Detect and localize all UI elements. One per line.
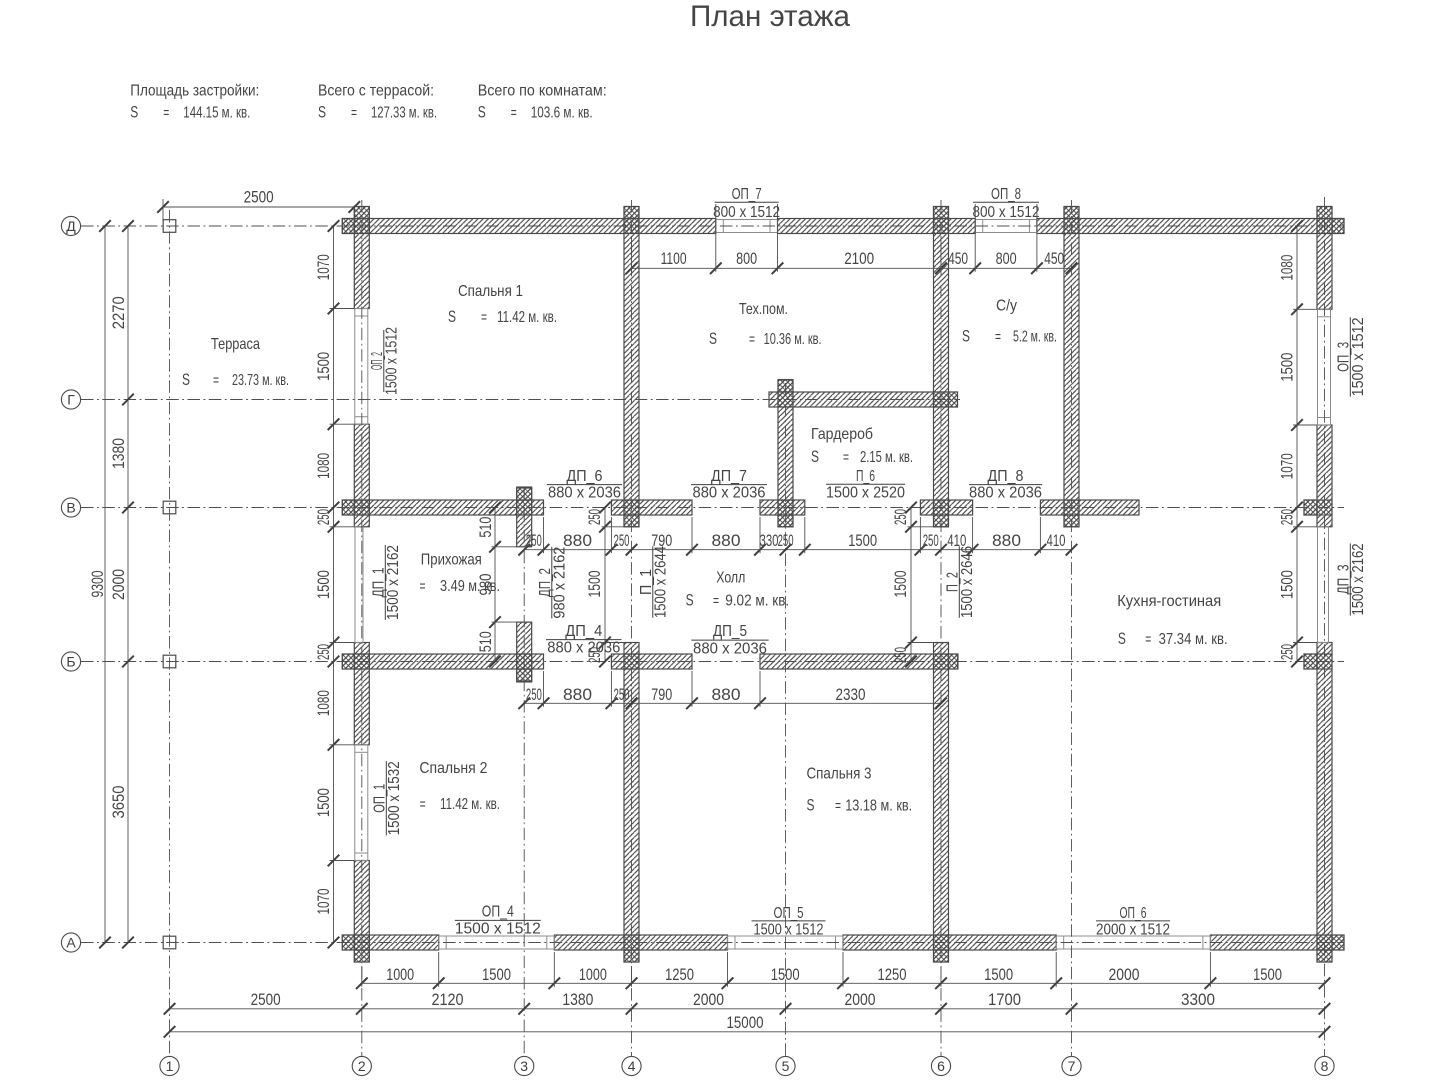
svg-text:510: 510 — [477, 631, 495, 652]
svg-text:S: S — [130, 103, 138, 122]
svg-text:5.2 м. кв.: 5.2 м. кв. — [1013, 329, 1057, 346]
svg-text:250: 250 — [315, 644, 333, 660]
svg-text:=: = — [420, 796, 426, 813]
svg-text:8: 8 — [1321, 1058, 1329, 1074]
svg-text:ОП_5: ОП_5 — [774, 905, 804, 922]
svg-text:250: 250 — [923, 532, 939, 550]
svg-text:2.15 м. кв.: 2.15 м. кв. — [860, 449, 913, 466]
svg-text:Гардероб: Гардероб — [811, 426, 873, 443]
svg-text:11.42 м. кв.: 11.42 м. кв. — [497, 309, 557, 326]
svg-text:330: 330 — [760, 532, 779, 550]
svg-text:1500: 1500 — [315, 788, 333, 817]
svg-text:880 x 2036: 880 x 2036 — [548, 485, 621, 502]
svg-text:=: = — [511, 105, 517, 122]
svg-text:510: 510 — [477, 517, 495, 538]
svg-text:ДП_7: ДП_7 — [711, 468, 747, 485]
svg-text:1080: 1080 — [1279, 255, 1297, 281]
svg-text:1500 х 1532: 1500 х 1532 — [386, 761, 403, 835]
svg-text:23.73 м. кв.: 23.73 м. кв. — [232, 372, 289, 389]
svg-text:S: S — [962, 327, 970, 346]
svg-text:250: 250 — [1279, 644, 1297, 660]
svg-text:S: S — [1118, 629, 1126, 648]
svg-text:144.15 м. кв.: 144.15 м. кв. — [183, 105, 250, 122]
svg-text:880: 880 — [563, 686, 592, 704]
svg-text:1500 x 1512: 1500 x 1512 — [384, 327, 401, 395]
svg-text:S: S — [807, 796, 815, 815]
svg-text:=: = — [213, 372, 219, 389]
svg-text:ДП_4: ДП_4 — [565, 623, 602, 640]
svg-text:=: = — [420, 578, 426, 595]
svg-text:1500 х 2162: 1500 х 2162 — [1350, 544, 1367, 616]
svg-text:=: = — [163, 105, 169, 122]
svg-text:1080: 1080 — [315, 690, 333, 716]
svg-text:1500: 1500 — [848, 532, 877, 550]
svg-text:250: 250 — [614, 532, 630, 550]
svg-text:1380: 1380 — [562, 991, 593, 1009]
svg-text:ОП_6: ОП_6 — [1120, 905, 1147, 922]
svg-text:1500 х 2644: 1500 х 2644 — [653, 546, 670, 618]
svg-text:250: 250 — [892, 647, 910, 663]
svg-text:3.49 м. кв.: 3.49 м. кв. — [440, 578, 500, 595]
svg-text:1500: 1500 — [1279, 570, 1297, 599]
svg-text:S: S — [709, 329, 717, 348]
svg-text:Холл: Холл — [716, 570, 745, 587]
svg-text:880 x 2036: 880 x 2036 — [693, 485, 766, 502]
svg-text:Спальня 1: Спальня 1 — [458, 283, 523, 300]
svg-text:250: 250 — [614, 686, 630, 704]
svg-text:250: 250 — [586, 509, 604, 525]
svg-text:S: S — [811, 447, 819, 466]
svg-text:2100: 2100 — [844, 250, 874, 268]
svg-text:250: 250 — [526, 532, 542, 550]
svg-text:2500: 2500 — [244, 189, 274, 207]
svg-text:С/у: С/у — [996, 298, 1017, 315]
svg-text:ДП_6: ДП_6 — [567, 468, 603, 485]
svg-text:В: В — [66, 499, 75, 515]
svg-text:15000: 15000 — [727, 1014, 764, 1032]
svg-text:450: 450 — [948, 250, 968, 268]
svg-text:Кухня-гостиная: Кухня-гостиная — [1117, 593, 1221, 610]
svg-text:1500: 1500 — [586, 571, 604, 598]
svg-text:=: = — [835, 798, 841, 815]
svg-text:1700: 1700 — [988, 991, 1021, 1009]
svg-text:План этажа: План этажа — [690, 0, 850, 33]
svg-text:А: А — [66, 934, 76, 950]
svg-text:1000: 1000 — [579, 966, 607, 984]
svg-text:250: 250 — [892, 509, 910, 525]
svg-text:2270: 2270 — [110, 296, 128, 329]
svg-text:2000 x 1512: 2000 x 1512 — [1096, 922, 1170, 939]
svg-text:1500: 1500 — [315, 570, 333, 599]
svg-text:37.34 м. кв.: 37.34 м. кв. — [1159, 631, 1228, 648]
svg-text:2500: 2500 — [251, 991, 281, 1009]
svg-text:2000: 2000 — [693, 991, 724, 1009]
svg-text:11.42 м. кв.: 11.42 м. кв. — [440, 796, 500, 813]
svg-text:1100: 1100 — [661, 250, 687, 268]
svg-text:S: S — [318, 103, 326, 122]
svg-text:Д: Д — [66, 218, 76, 234]
svg-text:250: 250 — [315, 509, 333, 525]
svg-text:5: 5 — [782, 1058, 790, 1074]
svg-text:6: 6 — [937, 1058, 945, 1074]
svg-text:250: 250 — [778, 532, 794, 550]
svg-text:П_6: П_6 — [856, 468, 875, 485]
svg-text:Площадь застройки:: Площадь застройки: — [130, 83, 259, 100]
svg-text:1080: 1080 — [315, 453, 333, 479]
svg-text:10.36 м. кв.: 10.36 м. кв. — [764, 331, 822, 348]
svg-text:1500 х 2646: 1500 х 2646 — [959, 546, 976, 618]
svg-text:980 х 2162: 980 х 2162 — [552, 547, 569, 619]
svg-text:1250: 1250 — [665, 966, 694, 984]
svg-text:Г: Г — [67, 391, 75, 407]
svg-text:=: = — [351, 105, 357, 122]
svg-text:=: = — [713, 593, 719, 610]
svg-text:410: 410 — [1047, 532, 1066, 550]
svg-text:Всего с террасой:: Всего с террасой: — [318, 83, 434, 100]
svg-text:1500 х 2162: 1500 х 2162 — [385, 545, 402, 620]
svg-text:800: 800 — [736, 250, 757, 268]
svg-text:1500 х 1512: 1500 х 1512 — [754, 922, 824, 939]
svg-text:1000: 1000 — [386, 966, 414, 984]
svg-text:1500: 1500 — [1279, 353, 1297, 382]
svg-text:Терраса: Терраса — [211, 336, 260, 353]
svg-text:880 x 2036: 880 x 2036 — [693, 641, 767, 658]
svg-text:ДП_5: ДП_5 — [713, 623, 747, 640]
svg-text:790: 790 — [651, 686, 672, 704]
svg-text:2330: 2330 — [836, 686, 866, 704]
svg-text:880: 880 — [712, 686, 741, 704]
svg-text:880: 880 — [992, 532, 1021, 550]
svg-text:880 x 2036: 880 x 2036 — [969, 485, 1042, 502]
svg-text:7: 7 — [1068, 1058, 1076, 1074]
svg-text:1070: 1070 — [1279, 453, 1297, 479]
svg-text:2000: 2000 — [1109, 966, 1140, 984]
svg-text:3650: 3650 — [110, 786, 128, 819]
svg-text:800 x 1512: 800 x 1512 — [973, 204, 1040, 221]
svg-text:=: = — [995, 329, 1001, 346]
svg-text:103.6 м. кв.: 103.6 м. кв. — [531, 105, 593, 122]
svg-text:1250: 1250 — [878, 966, 907, 984]
svg-text:13.18 м. кв.: 13.18 м. кв. — [845, 798, 912, 815]
svg-text:450: 450 — [1044, 250, 1064, 268]
svg-text:Спальня 3: Спальня 3 — [807, 766, 872, 783]
svg-text:=: = — [1145, 631, 1151, 648]
svg-text:ОП_8: ОП_8 — [991, 186, 1021, 203]
svg-text:1500 x 1512: 1500 x 1512 — [1350, 317, 1367, 396]
svg-text:3: 3 — [520, 1058, 528, 1074]
svg-text:127.33 м. кв.: 127.33 м. кв. — [371, 105, 437, 122]
svg-text:=: = — [749, 331, 755, 348]
svg-text:S: S — [478, 103, 486, 122]
svg-text:800 x 1512: 800 x 1512 — [713, 204, 780, 221]
svg-text:S: S — [448, 307, 456, 326]
svg-text:4: 4 — [628, 1058, 636, 1074]
svg-text:2: 2 — [358, 1058, 366, 1074]
svg-text:880 x 2036: 880 x 2036 — [547, 640, 620, 657]
svg-text:1070: 1070 — [315, 889, 333, 915]
svg-text:9.02 м. кв.: 9.02 м. кв. — [725, 593, 789, 610]
svg-text:2000: 2000 — [845, 991, 876, 1009]
svg-text:1: 1 — [166, 1058, 174, 1074]
svg-text:1070: 1070 — [315, 254, 333, 280]
svg-text:S: S — [182, 370, 190, 389]
svg-text:=: = — [843, 449, 849, 466]
svg-text:250: 250 — [526, 686, 542, 704]
svg-text:Прихожая: Прихожая — [421, 552, 482, 569]
svg-text:Б: Б — [66, 653, 75, 669]
svg-text:1500: 1500 — [892, 571, 910, 598]
svg-text:=: = — [481, 309, 487, 326]
svg-text:3300: 3300 — [1181, 991, 1215, 1009]
svg-text:Тех.пом.: Тех.пом. — [739, 301, 788, 318]
svg-text:1500: 1500 — [482, 966, 511, 984]
svg-text:1500: 1500 — [1253, 966, 1282, 984]
svg-text:880: 880 — [712, 532, 741, 550]
svg-text:2120: 2120 — [432, 991, 464, 1009]
svg-text:1500 x 2520: 1500 x 2520 — [826, 485, 905, 502]
svg-text:250: 250 — [1279, 509, 1297, 525]
svg-text:ОП_7: ОП_7 — [732, 186, 762, 203]
svg-text:9300: 9300 — [89, 571, 107, 598]
svg-text:2000: 2000 — [110, 569, 128, 600]
svg-text:Спальня 2: Спальня 2 — [419, 760, 487, 777]
svg-text:S: S — [686, 591, 694, 610]
svg-text:1380: 1380 — [110, 438, 128, 469]
svg-text:1500: 1500 — [984, 966, 1013, 984]
svg-text:Всего по комнатам:: Всего по комнатам: — [478, 83, 607, 100]
svg-text:800: 800 — [996, 250, 1017, 268]
svg-text:1500: 1500 — [771, 966, 800, 984]
svg-text:1500 x 1512: 1500 x 1512 — [455, 921, 541, 938]
svg-text:ДП_8: ДП_8 — [988, 468, 1024, 485]
svg-text:1500: 1500 — [315, 352, 333, 381]
svg-text:ОП_4: ОП_4 — [482, 904, 514, 921]
